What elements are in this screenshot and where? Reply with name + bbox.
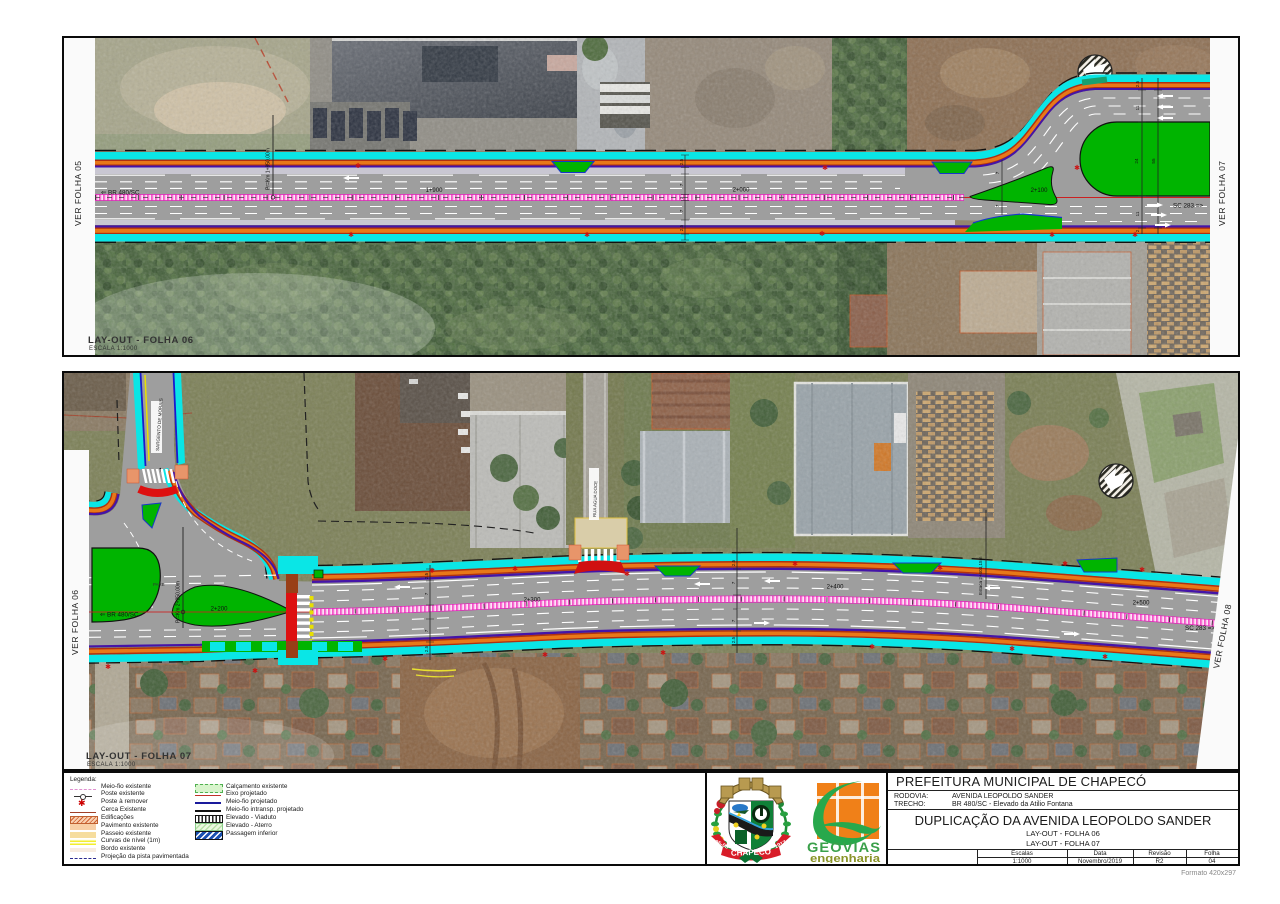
svg-text:✱: ✱ [429, 567, 435, 575]
svg-text:✱: ✱ [1062, 560, 1068, 568]
svg-text:✱: ✱ [355, 162, 361, 170]
svg-text:✱: ✱ [1074, 164, 1080, 172]
svg-text:✱: ✱ [869, 643, 875, 651]
svg-text:✱: ✱ [660, 649, 666, 657]
svg-text:✱: ✱ [1049, 231, 1055, 239]
svg-text:✱: ✱ [819, 230, 825, 238]
svg-text:2.5: 2.5 [679, 158, 684, 165]
svg-text:2.5: 2.5 [1135, 80, 1140, 87]
svg-text:1+900: 1+900 [426, 188, 444, 194]
svg-text:7: 7 [995, 204, 1000, 207]
svg-text:✱: ✱ [792, 560, 798, 568]
svg-text:CHAPECÓ: CHAPECÓ [731, 847, 771, 857]
svg-text:2.5: 2.5 [424, 645, 429, 652]
svg-text:✱: ✱ [348, 231, 354, 239]
svg-text:✱: ✱ [512, 565, 518, 573]
svg-text:7: 7 [424, 592, 429, 595]
svg-text:✱: ✱ [105, 663, 111, 671]
svg-text:SC 283 =>: SC 283 => [1185, 625, 1215, 632]
svg-text:Estaca 2+403,15m: Estaca 2+403,15m [978, 556, 983, 595]
svg-text:✱: ✱ [822, 164, 828, 172]
svg-text:2+500: 2+500 [1133, 601, 1151, 607]
svg-text:3: 3 [679, 196, 684, 199]
svg-text:2+300: 2+300 [524, 598, 542, 604]
svg-text:✱: ✱ [584, 231, 590, 239]
svg-text:✱: ✱ [382, 655, 388, 663]
svg-text:✱: ✱ [1102, 653, 1108, 661]
svg-text:⇐ BR 480/SC: ⇐ BR 480/SC [100, 612, 139, 619]
svg-text:PARE: PARE [153, 582, 165, 587]
svg-text:2.5: 2.5 [731, 559, 736, 566]
svg-text:2+000: 2+000 [733, 187, 751, 193]
svg-text:✱: ✱ [542, 651, 548, 659]
svg-text:SC 283 =>: SC 283 => [1173, 203, 1203, 210]
svg-text:2+400: 2+400 [827, 585, 845, 591]
svg-text:11: 11 [1135, 105, 1140, 110]
svg-text:7: 7 [995, 171, 1000, 174]
svg-text:2.5: 2.5 [679, 224, 684, 231]
svg-text:7: 7 [731, 581, 736, 584]
svg-text:✱: ✱ [1139, 566, 1145, 574]
svg-text:engenharia: engenharia [810, 853, 881, 863]
svg-text:2.5: 2.5 [731, 636, 736, 643]
svg-text:✱: ✱ [937, 564, 943, 572]
svg-text:7: 7 [424, 629, 429, 632]
svg-text:⇐ BR 480/SC: ⇐ BR 480/SC [101, 190, 140, 197]
svg-text:✱: ✱ [624, 570, 630, 578]
svg-text:Pr=Km 1+850,00m: Pr=Km 1+850,00m [266, 148, 272, 190]
svg-text:25-08: 25-08 [714, 839, 729, 850]
svg-text:55: 55 [1151, 158, 1156, 164]
svg-text:24: 24 [1134, 158, 1139, 164]
svg-text:11: 11 [1135, 211, 1140, 216]
svg-text:2+200: 2+200 [211, 607, 229, 613]
svg-text:✱: ✱ [1132, 231, 1138, 239]
svg-text:✱: ✱ [1009, 645, 1015, 653]
svg-text:Pr=Km 2+250,00m: Pr=Km 2+250,00m [176, 581, 182, 623]
svg-text:1917: 1917 [774, 840, 788, 850]
svg-text:7: 7 [679, 183, 684, 186]
svg-text:✱: ✱ [252, 667, 258, 675]
svg-text:7: 7 [731, 619, 736, 622]
svg-text:2+100: 2+100 [1031, 188, 1049, 194]
svg-text:7: 7 [679, 209, 684, 212]
